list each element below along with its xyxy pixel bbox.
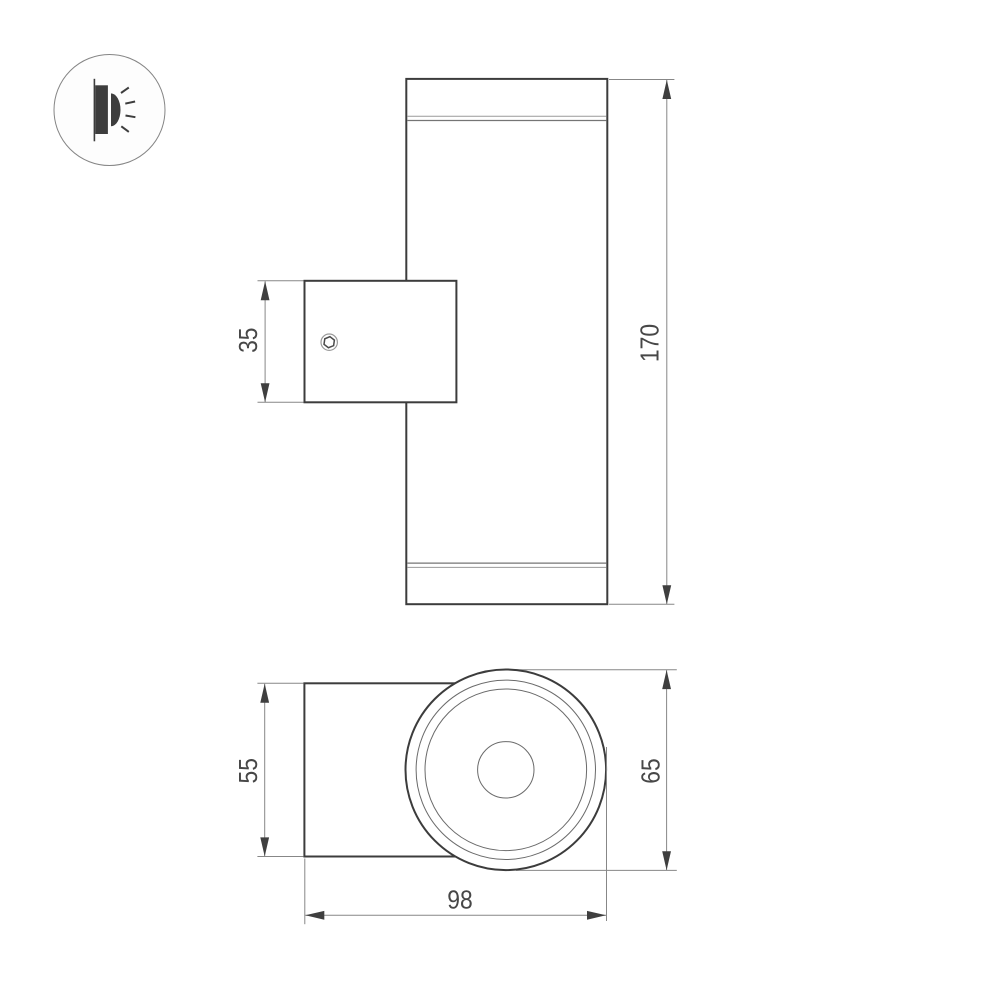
svg-text:55: 55 [235, 758, 264, 783]
svg-text:98: 98 [447, 886, 472, 915]
svg-text:35: 35 [235, 327, 264, 352]
svg-text:65: 65 [637, 758, 666, 783]
svg-text:170: 170 [636, 324, 665, 362]
